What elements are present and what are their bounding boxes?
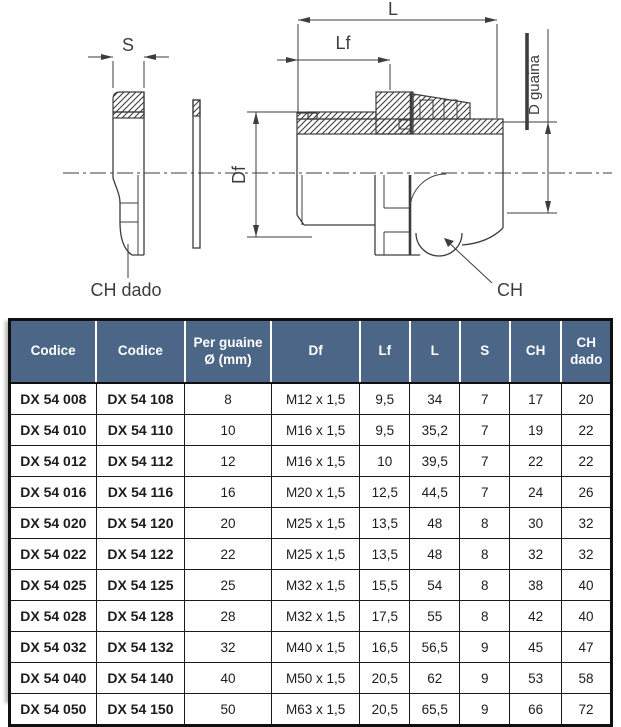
- col-header-df: Df: [271, 320, 359, 384]
- col-header-per-guaine: Per guaine Ø (mm): [185, 320, 272, 384]
- cell-codice-1: DX 54 028: [10, 601, 97, 632]
- cell-l: 54: [410, 570, 460, 601]
- cell-codice-2: DX 54 108: [96, 383, 184, 415]
- cell-ch: 66: [510, 694, 562, 726]
- cell-s: 8: [460, 539, 510, 570]
- cell-l: 55: [410, 601, 460, 632]
- cell-per-guaine: 40: [185, 663, 272, 694]
- cell-codice-1: DX 54 016: [10, 477, 97, 508]
- cell-ch-dado: 26: [561, 477, 611, 508]
- dim-label-lf: Lf: [335, 33, 351, 53]
- cell-ch-dado: 47: [561, 632, 611, 663]
- cell-df: M32 x 1,5: [271, 570, 359, 601]
- cell-lf: 20,5: [360, 663, 410, 694]
- cell-df: M50 x 1,5: [271, 663, 359, 694]
- cell-ch: 53: [510, 663, 562, 694]
- cell-per-guaine: 16: [185, 477, 272, 508]
- table-row: DX 54 040 DX 54 140 40 M50 x 1,5 20,5 62…: [10, 663, 612, 694]
- cell-l: 48: [410, 508, 460, 539]
- table-row: DX 54 020 DX 54 120 20 M25 x 1,5 13,5 48…: [10, 508, 612, 539]
- cell-l: 39,5: [410, 446, 460, 477]
- label-ch-dado: CH dado: [90, 280, 161, 300]
- cell-lf: 12,5: [360, 477, 410, 508]
- cell-l: 35,2: [410, 415, 460, 446]
- cell-ch: 42: [510, 601, 562, 632]
- table-header-row: Codice Codice Per guaine Ø (mm) Df Lf L …: [10, 320, 612, 384]
- washer-side-view: [193, 100, 200, 248]
- table-row: DX 54 022 DX 54 122 22 M25 x 1,5 13,5 48…: [10, 539, 612, 570]
- table-row: DX 54 012 DX 54 112 12 M16 x 1,5 10 39,5…: [10, 446, 612, 477]
- col-header-codice-1: Codice: [10, 320, 97, 384]
- cell-per-guaine: 20: [185, 508, 272, 539]
- cell-per-guaine: 28: [185, 601, 272, 632]
- cell-df: M25 x 1,5: [271, 539, 359, 570]
- cell-codice-2: DX 54 132: [96, 632, 184, 663]
- cell-ch: 32: [510, 539, 562, 570]
- cell-ch: 38: [510, 570, 562, 601]
- cell-per-guaine: 32: [185, 632, 272, 663]
- dim-label-df: Df: [229, 165, 249, 184]
- cell-codice-1: DX 54 050: [10, 694, 97, 726]
- cell-df: M63 x 1,5: [271, 694, 359, 726]
- cell-per-guaine: 25: [185, 570, 272, 601]
- dimension-d-guaina: D guaina: [503, 29, 557, 213]
- cell-ch-dado: 40: [561, 570, 611, 601]
- cell-lf: 16,5: [360, 632, 410, 663]
- col-header-codice-2: Codice: [96, 320, 184, 384]
- cell-codice-2: DX 54 125: [96, 570, 184, 601]
- cell-per-guaine: 8: [185, 383, 272, 415]
- cell-s: 7: [460, 415, 510, 446]
- dimension-lf: Lf: [277, 33, 390, 90]
- cell-codice-2: DX 54 128: [96, 601, 184, 632]
- cell-l: 56,5: [410, 632, 460, 663]
- cell-ch-dado: 32: [561, 508, 611, 539]
- dimension-s: S: [88, 35, 169, 88]
- cell-lf: 20,5: [360, 694, 410, 726]
- cell-codice-1: DX 54 020: [10, 508, 97, 539]
- leader-ch-dado: CH dado: [90, 244, 161, 300]
- cell-ch-dado: 40: [561, 601, 611, 632]
- cell-per-guaine: 22: [185, 539, 272, 570]
- cell-ch-dado: 22: [561, 415, 611, 446]
- cell-codice-1: DX 54 022: [10, 539, 97, 570]
- cell-ch: 24: [510, 477, 562, 508]
- cell-l: 65,5: [410, 694, 460, 726]
- cell-codice-2: DX 54 120: [96, 508, 184, 539]
- cell-ch-dado: 58: [561, 663, 611, 694]
- col-header-ch: CH: [510, 320, 562, 384]
- cell-codice-1: DX 54 010: [10, 415, 97, 446]
- dim-label-l: L: [388, 0, 398, 19]
- cell-df: M25 x 1,5: [271, 508, 359, 539]
- cell-s: 8: [460, 570, 510, 601]
- cell-ch-dado: 32: [561, 539, 611, 570]
- cell-s: 8: [460, 601, 510, 632]
- cell-codice-1: DX 54 008: [10, 383, 97, 415]
- cell-codice-2: DX 54 116: [96, 477, 184, 508]
- cell-per-guaine: 12: [185, 446, 272, 477]
- cell-df: M20 x 1,5: [271, 477, 359, 508]
- gland-body-section: [297, 92, 503, 256]
- col-header-l: L: [410, 320, 460, 384]
- table-row: DX 54 010 DX 54 110 10 M16 x 1,5 9,5 35,…: [10, 415, 612, 446]
- table-row: DX 54 016 DX 54 116 16 M20 x 1,5 12,5 44…: [10, 477, 612, 508]
- leader-ch: CH: [444, 238, 523, 300]
- cell-lf: 10: [360, 446, 410, 477]
- catalog-page: { "drawing": { "labels": { "s": "S", "l"…: [0, 0, 621, 705]
- cell-l: 62: [410, 663, 460, 694]
- cell-ch: 30: [510, 508, 562, 539]
- col-header-s: S: [460, 320, 510, 384]
- label-ch: CH: [497, 280, 523, 300]
- cell-codice-1: DX 54 025: [10, 570, 97, 601]
- cell-s: 7: [460, 383, 510, 415]
- cell-s: 7: [460, 446, 510, 477]
- cell-s: 9: [460, 663, 510, 694]
- cell-per-guaine: 10: [185, 415, 272, 446]
- cell-codice-2: DX 54 150: [96, 694, 184, 726]
- cell-ch-dado: 72: [561, 694, 611, 726]
- table-row: DX 54 025 DX 54 125 25 M32 x 1,5 15,5 54…: [10, 570, 612, 601]
- table-row: DX 54 032 DX 54 132 32 M40 x 1,5 16,5 56…: [10, 632, 612, 663]
- cell-codice-1: DX 54 032: [10, 632, 97, 663]
- table-row: DX 54 028 DX 54 128 28 M32 x 1,5 17,5 55…: [10, 601, 612, 632]
- cell-ch-dado: 22: [561, 446, 611, 477]
- cell-per-guaine: 50: [185, 694, 272, 726]
- cell-codice-1: DX 54 012: [10, 446, 97, 477]
- technical-drawing: S CH dado Df: [0, 0, 621, 315]
- cell-codice-2: DX 54 110: [96, 415, 184, 446]
- cell-df: M12 x 1,5: [271, 383, 359, 415]
- cell-lf: 17,5: [360, 601, 410, 632]
- cell-df: M16 x 1,5: [271, 415, 359, 446]
- cell-l: 44,5: [410, 477, 460, 508]
- dim-label-s: S: [122, 35, 134, 55]
- cell-s: 8: [460, 508, 510, 539]
- cell-df: M32 x 1,5: [271, 601, 359, 632]
- cell-lf: 9,5: [360, 415, 410, 446]
- cell-s: 9: [460, 632, 510, 663]
- col-header-lf: Lf: [360, 320, 410, 384]
- cell-codice-2: DX 54 140: [96, 663, 184, 694]
- col-header-ch-dado: CH dado: [561, 320, 611, 384]
- cell-s: 9: [460, 694, 510, 726]
- cell-df: M40 x 1,5: [271, 632, 359, 663]
- cell-lf: 13,5: [360, 539, 410, 570]
- cell-ch: 17: [510, 383, 562, 415]
- cell-df: M16 x 1,5: [271, 446, 359, 477]
- cell-ch: 45: [510, 632, 562, 663]
- cell-lf: 9,5: [360, 383, 410, 415]
- cell-s: 7: [460, 477, 510, 508]
- cell-codice-2: DX 54 122: [96, 539, 184, 570]
- table-row: DX 54 008 DX 54 108 8 M12 x 1,5 9,5 34 7…: [10, 383, 612, 415]
- cell-ch: 22: [510, 446, 562, 477]
- cell-l: 34: [410, 383, 460, 415]
- table-row: DX 54 050 DX 54 150 50 M63 x 1,5 20,5 65…: [10, 694, 612, 726]
- cell-lf: 13,5: [360, 508, 410, 539]
- cell-l: 48: [410, 539, 460, 570]
- dim-label-d-guaina: D guaina: [526, 54, 543, 115]
- cell-lf: 15,5: [360, 570, 410, 601]
- cell-ch: 19: [510, 415, 562, 446]
- spec-table-container: Codice Codice Per guaine Ø (mm) Df Lf L …: [8, 318, 613, 700]
- spec-table: Codice Codice Per guaine Ø (mm) Df Lf L …: [8, 318, 613, 727]
- cell-codice-1: DX 54 040: [10, 663, 97, 694]
- cell-codice-2: DX 54 112: [96, 446, 184, 477]
- spec-table-body: DX 54 008 DX 54 108 8 M12 x 1,5 9,5 34 7…: [10, 383, 612, 726]
- cell-ch-dado: 20: [561, 383, 611, 415]
